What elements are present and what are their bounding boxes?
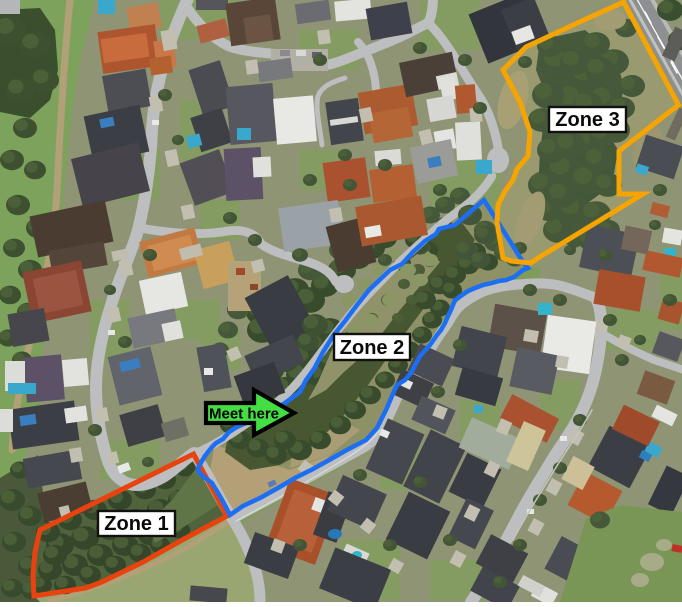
svg-text:Zone 2: Zone 2 — [340, 337, 404, 359]
svg-text:Meet here: Meet here — [209, 406, 279, 423]
svg-text:Zone 3: Zone 3 — [555, 109, 619, 131]
svg-text:Zone 1: Zone 1 — [104, 513, 168, 535]
